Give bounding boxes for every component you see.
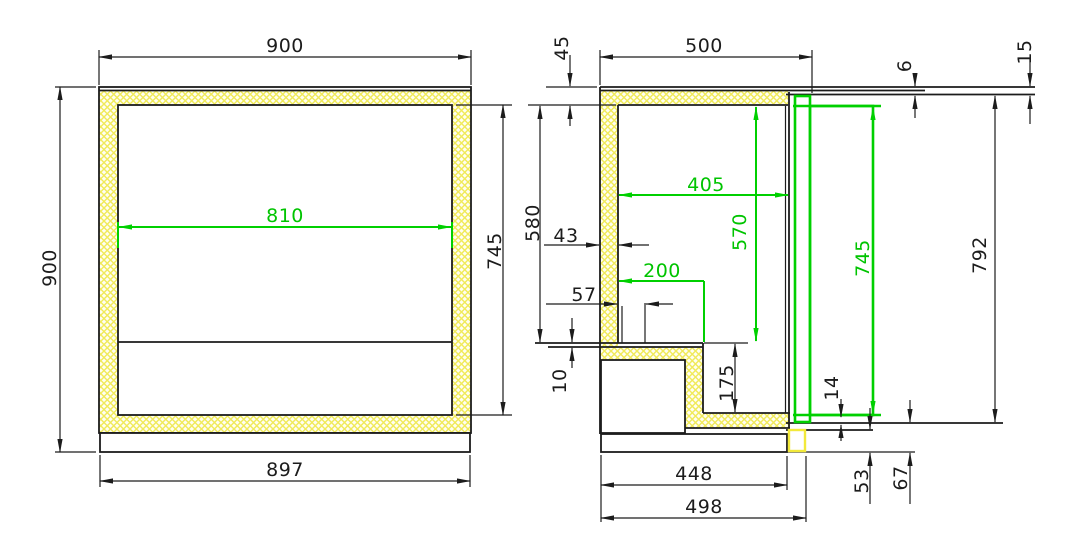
dim-label-base-depth: 448 [675, 463, 713, 485]
dim-label-inner-width: 810 [266, 205, 304, 227]
dim-inner-depth: 405 [619, 174, 788, 196]
dim-label-bottom-detail-67: 67 [890, 465, 912, 490]
dim-label-base-width: 897 [266, 459, 304, 481]
dim-label-inner-height: 745 [484, 232, 506, 270]
dim-top-thickness: 45 [546, 35, 597, 126]
dim-step-height: 175 [704, 343, 748, 412]
dim-door-bottom-gap: 14 [821, 375, 843, 441]
dim-label-door-bottom-gap: 14 [821, 375, 843, 400]
dim-label-wall-thickness: 43 [553, 225, 578, 247]
side-floor-insulation [600, 347, 687, 360]
dim-wall-thickness: 43 [544, 225, 649, 247]
dim-label-rear-height: 792 [969, 236, 991, 274]
side-machinery-bay [601, 360, 685, 433]
dim-label-door-height: 745 [852, 239, 874, 277]
dim-label-inner-depth: 405 [687, 174, 725, 196]
dim-label-counter-thickness: 15 [1014, 39, 1036, 64]
dim-label-outer-height: 900 [39, 249, 61, 287]
front-interior-cavity [118, 105, 452, 415]
dim-label-top-thickness: 45 [551, 35, 573, 60]
side-step-riser-insulation [685, 347, 703, 428]
dim-counter-thickness: 15 [1014, 39, 1036, 124]
side-wall-insulation [600, 104, 618, 360]
dim-step-depth: 200 [619, 260, 704, 342]
front-base-plinth [100, 433, 470, 452]
dim-height-to-step: 570 [729, 107, 756, 341]
dim-label-step-height: 175 [716, 364, 738, 402]
door-bottom-detail-yellow [789, 430, 805, 451]
dim-label-step-depth: 200 [643, 260, 681, 282]
side-section-view: 405 570 200 745 45 500 [522, 35, 1036, 522]
side-top-insulation [600, 90, 788, 104]
side-base-plinth [601, 434, 787, 452]
dim-label-outer-width: 900 [266, 35, 304, 57]
dim-floor-plate: 10 [549, 318, 572, 394]
drawing-canvas: 900 900 897 745 810 [0, 0, 1081, 551]
dim-label-height-to-step: 570 [729, 213, 751, 251]
dim-base-width: 897 [100, 455, 470, 487]
dim-outer-width: 900 [99, 35, 471, 85]
dim-label-floor-plate: 10 [549, 368, 571, 393]
dim-label-inner-offset: 57 [571, 284, 596, 306]
technical-drawing: 900 900 897 745 810 [0, 0, 1081, 551]
dim-door-height: 745 [852, 107, 874, 414]
dim-top-depth: 500 [600, 35, 812, 93]
dim-label-counter-lip: 6 [894, 60, 916, 73]
dim-outer-height: 900 [39, 87, 96, 452]
dim-label-overall-depth: 498 [685, 496, 723, 518]
dim-rear-height: 792 [969, 96, 995, 422]
dim-label-top-depth: 500 [685, 35, 723, 57]
dim-label-bottom-detail-53: 53 [851, 468, 873, 493]
dim-label-upper-inner-height: 580 [522, 204, 544, 242]
dim-counter-lip: 6 [894, 60, 916, 118]
front-section-view: 900 900 897 745 810 [39, 35, 512, 487]
side-lower-floor-insulation [703, 413, 790, 428]
